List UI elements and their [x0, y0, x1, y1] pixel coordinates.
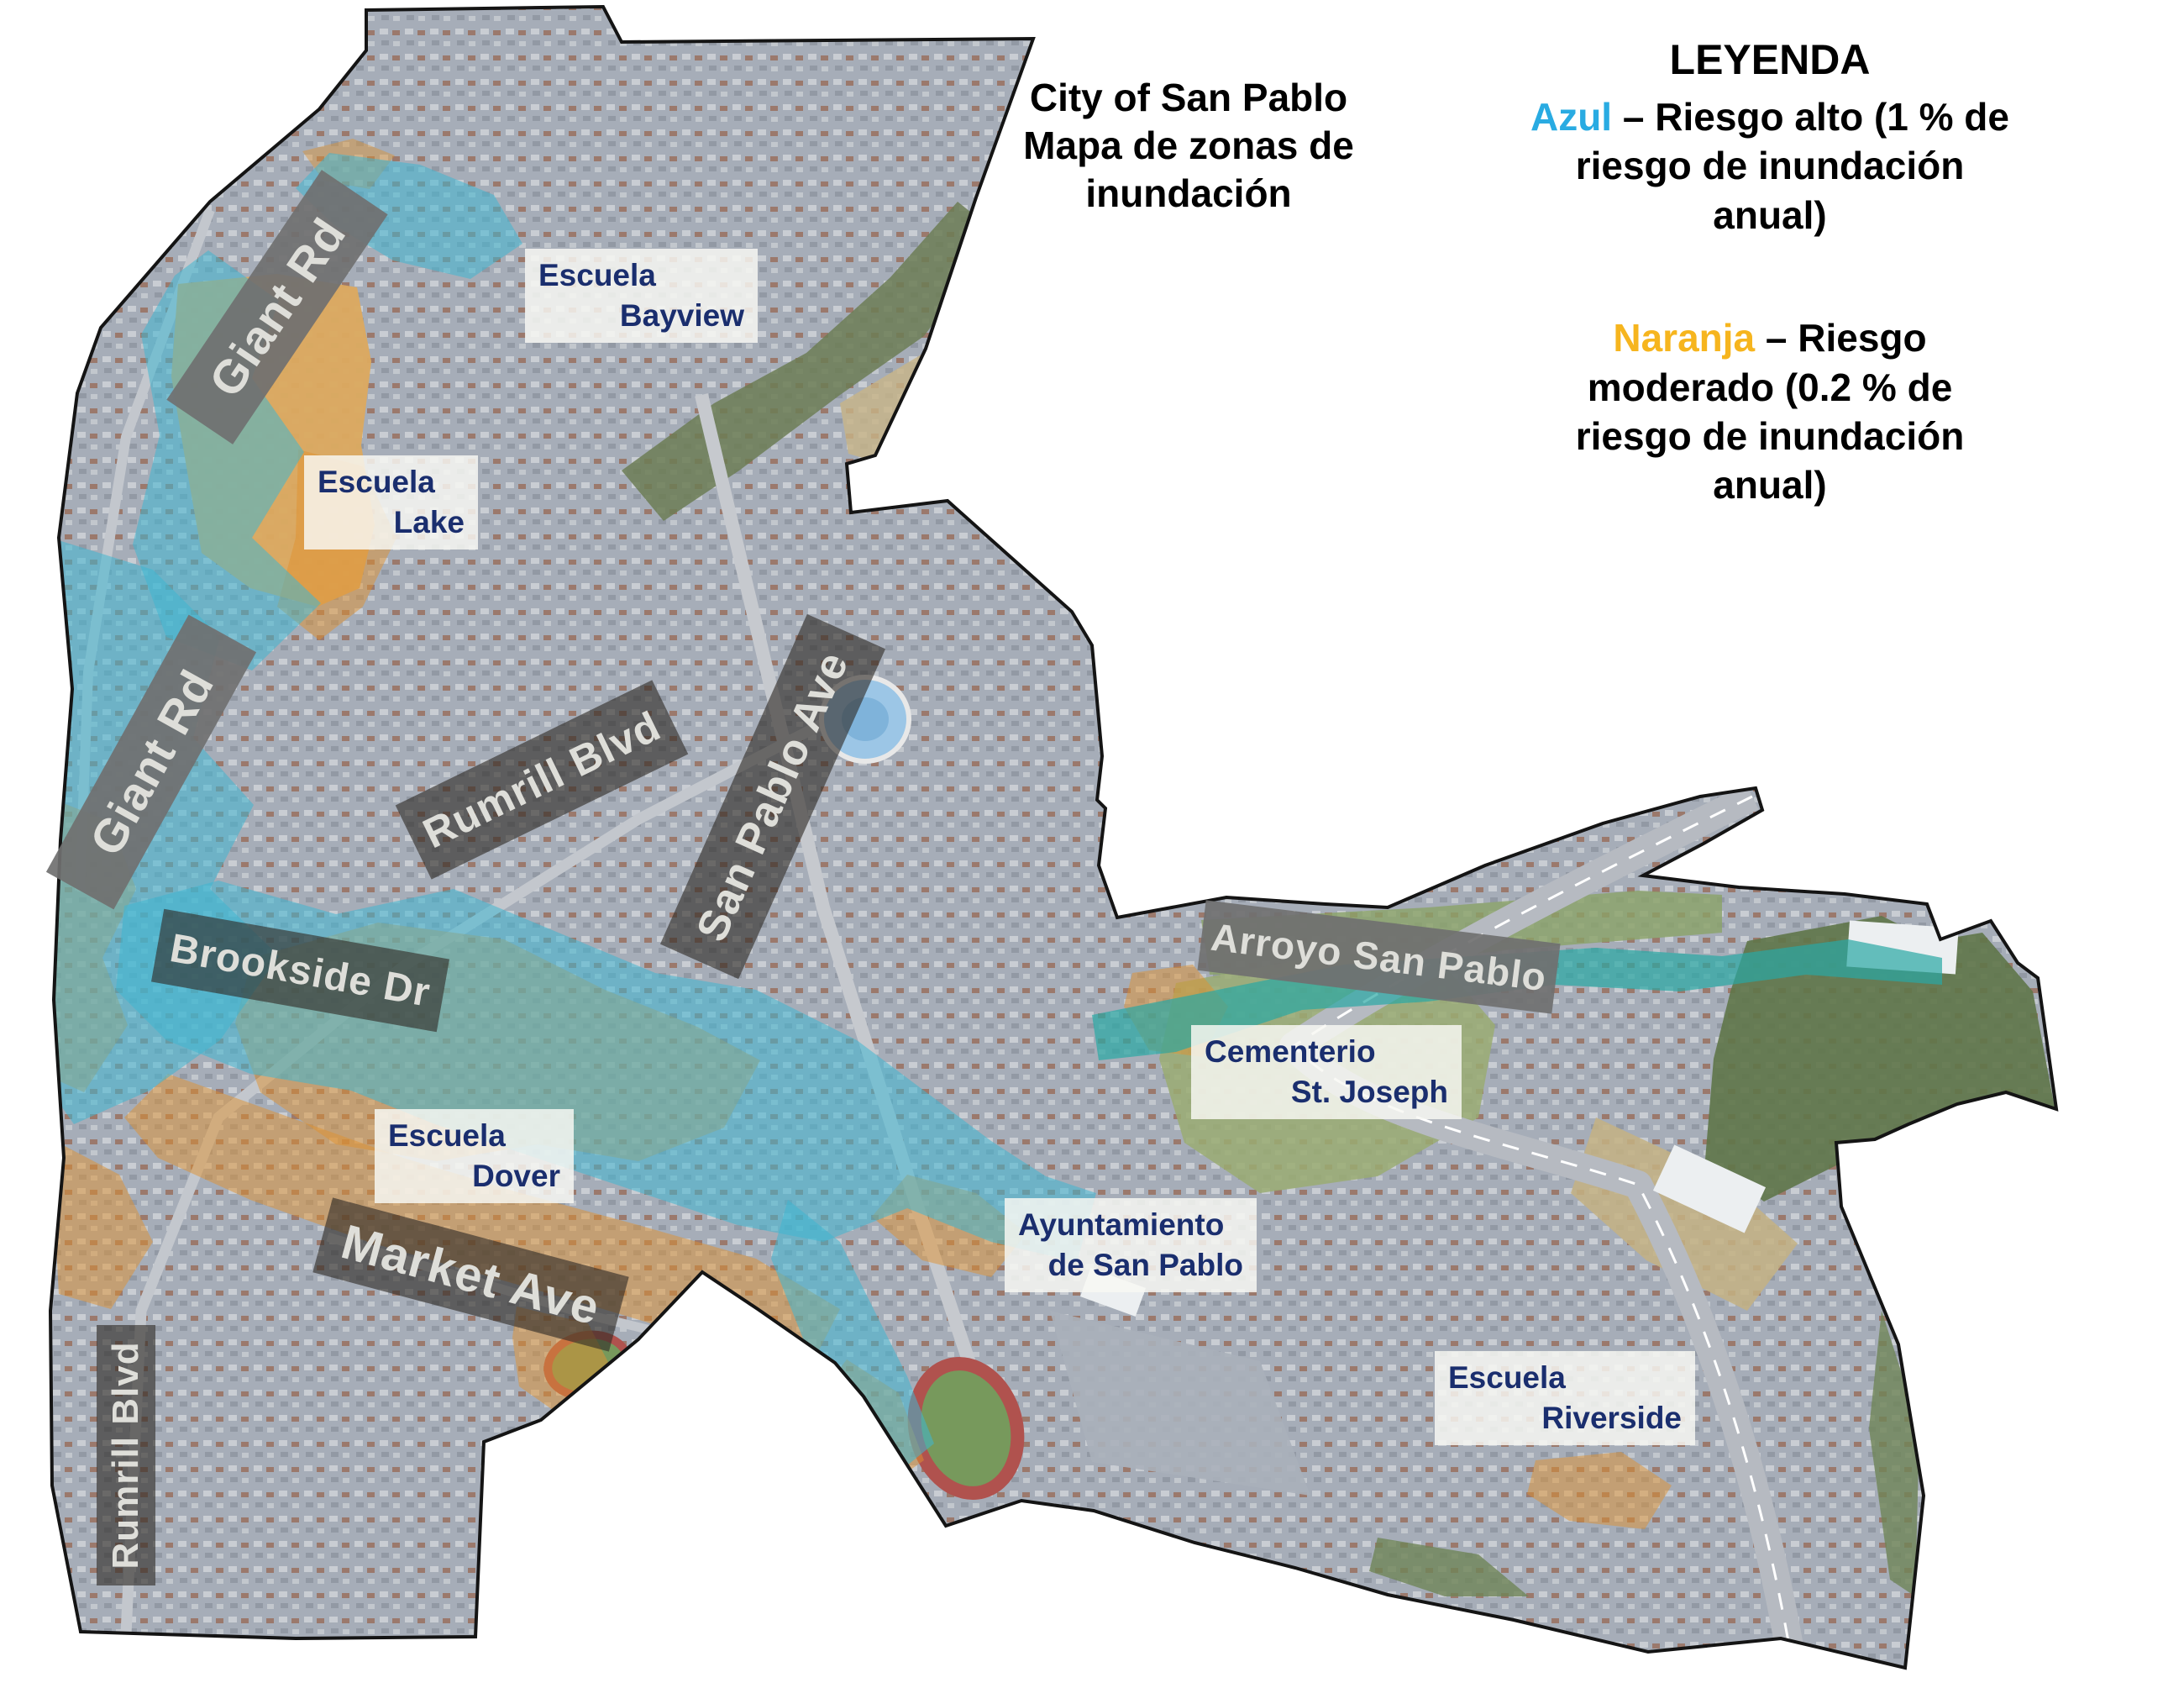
place-label-line2: St. Joseph — [1205, 1072, 1448, 1112]
place-label-line2: de San Pablo — [1018, 1245, 1243, 1286]
map-title-line2: Mapa de zonas de — [953, 122, 1424, 170]
legend-high-risk-text: – Riesgo alto (1 % de riesgo de inundaci… — [1576, 95, 2009, 237]
place-label-line2: Lake — [318, 502, 465, 543]
map-title-line1: City of San Pablo — [953, 74, 1424, 122]
place-label-escuela-lake: Escuela Lake — [304, 455, 478, 550]
place-label-ayuntamiento-de-san-pablo: Ayuntamiento de San Pablo — [1005, 1198, 1257, 1292]
legend-color-word-naranja: Naranja — [1613, 316, 1755, 360]
place-label-escuela-bayview: Escuela Bayview — [525, 249, 758, 343]
place-label-line1: Escuela — [388, 1116, 560, 1156]
street-label-text: Rumrill Blvd — [105, 1341, 147, 1569]
legend-item-moderate-risk: Naranja – Riesgo moderado (0.2 % de ries… — [1535, 313, 2005, 510]
place-label-escuela-riverside: Escuela Riverside — [1435, 1351, 1695, 1445]
street-label-rumrill-blvd-south: Rumrill Blvd — [97, 1325, 155, 1585]
legend-heading: LEYENDA — [1480, 35, 2060, 84]
map-title-line3: inundación — [953, 170, 1424, 218]
place-label-escuela-dover: Escuela Dover — [375, 1109, 574, 1203]
flood-map-page: Giant Rd Giant Rd Rumrill Blvd San Pablo… — [0, 0, 2184, 1688]
place-label-line1: Escuela — [1448, 1358, 1682, 1398]
place-label-line2: Riverside — [1448, 1398, 1682, 1438]
place-label-line1: Ayuntamiento — [1018, 1205, 1243, 1245]
place-label-line2: Bayview — [538, 296, 744, 336]
place-label-cementerio-st-joseph: Cementerio St. Joseph — [1191, 1025, 1462, 1119]
place-label-line1: Cementerio — [1205, 1032, 1448, 1072]
legend-item-high-risk: Azul – Riesgo alto (1 % de riesgo de inu… — [1518, 92, 2022, 239]
legend: LEYENDA Azul – Riesgo alto (1 % de riesg… — [1480, 35, 2060, 510]
place-label-line1: Escuela — [538, 255, 744, 296]
place-label-line1: Escuela — [318, 462, 465, 502]
map-title: City of San Pablo Mapa de zonas de inund… — [953, 74, 1424, 218]
legend-color-word-azul: Azul — [1530, 95, 1612, 139]
place-label-line2: Dover — [388, 1156, 560, 1196]
